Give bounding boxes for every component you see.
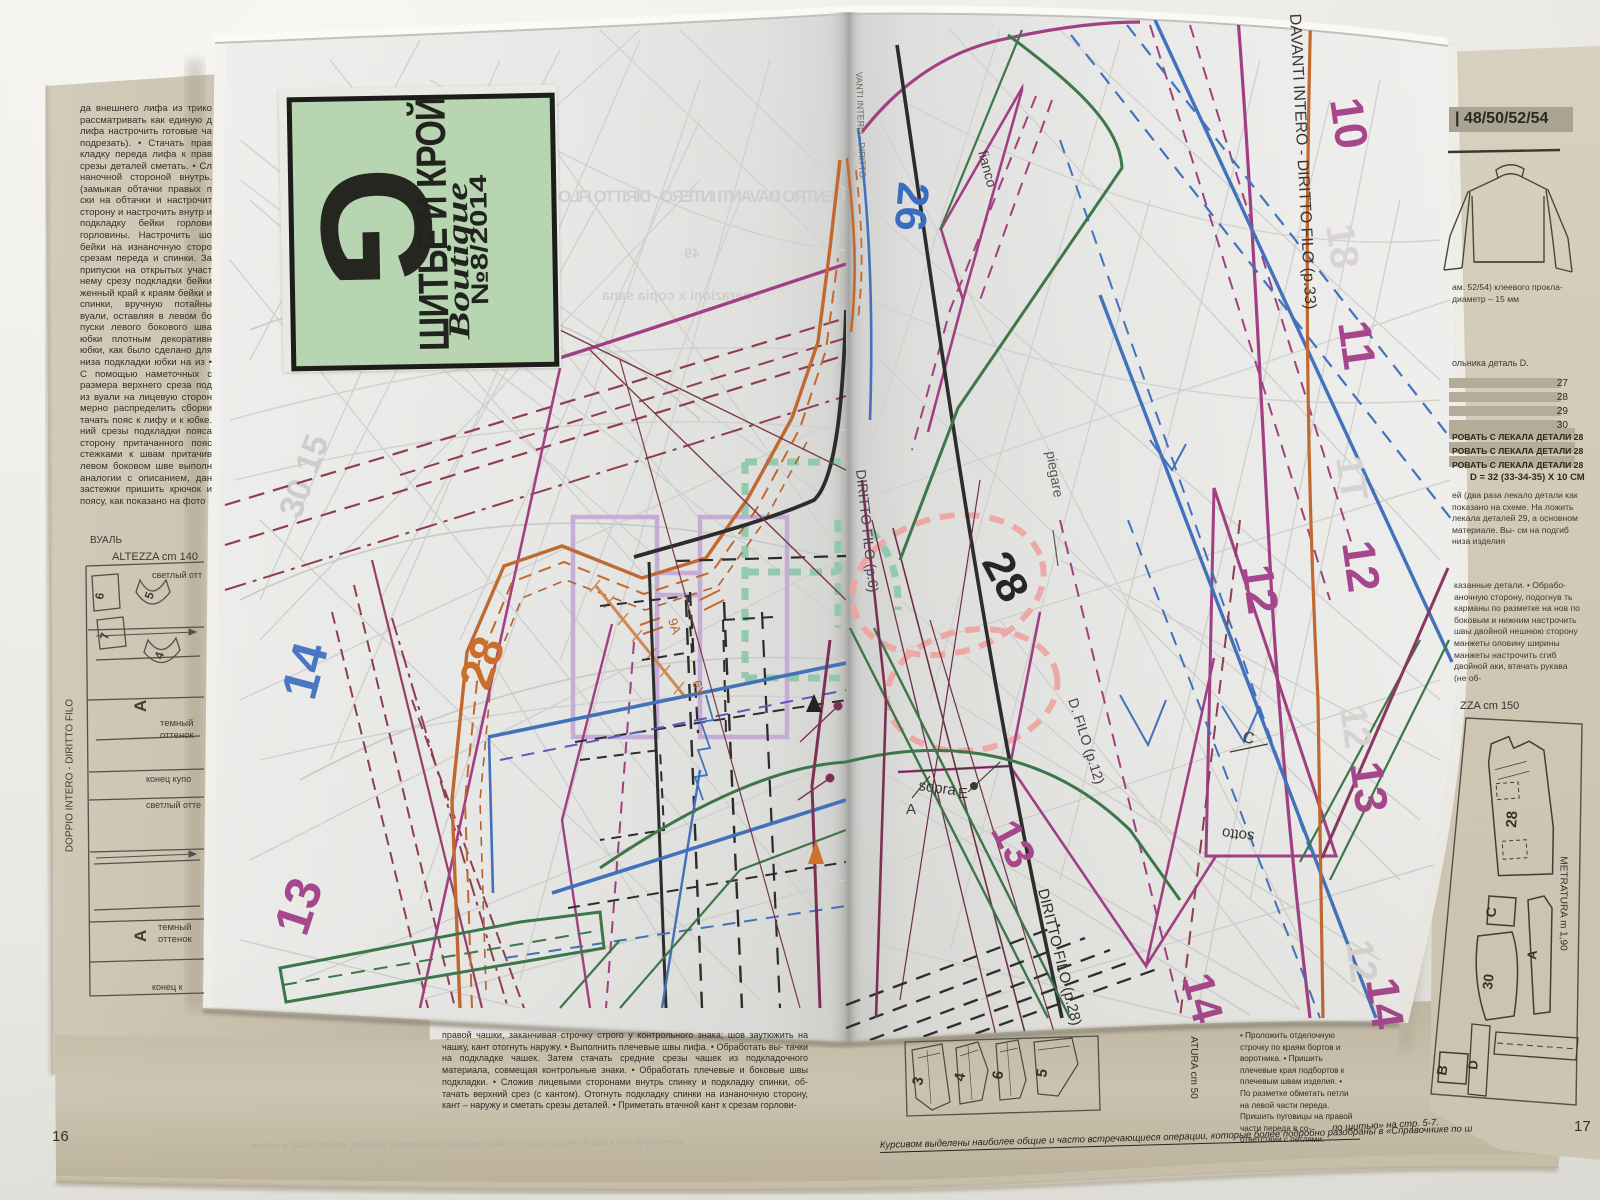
svg-text:D: D — [1465, 1059, 1481, 1070]
svg-text:1T: 1T — [1327, 453, 1375, 503]
svg-text:A: A — [906, 801, 916, 818]
svg-text:26: 26 — [885, 180, 938, 233]
svg-text:14: 14 — [1356, 974, 1415, 1032]
svg-text:12: 12 — [1332, 537, 1391, 595]
svg-text:49: 49 — [684, 245, 700, 261]
svg-text:30: 30 — [1479, 973, 1497, 990]
svg-text:11: 11 — [1328, 317, 1386, 372]
svg-text:12: 12 — [1232, 562, 1287, 617]
svg-text:A: A — [131, 930, 150, 942]
svg-text:10: 10 — [1320, 94, 1379, 152]
svg-text:CENTRO DAVANTI INTERO - DIRITT: CENTRO DAVANTI INTERO - DIRITTO FILO — [558, 187, 846, 206]
svg-text:12: 12 — [1337, 937, 1384, 985]
svg-text:18: 18 — [1317, 221, 1367, 271]
svg-text:12: 12 — [1331, 703, 1378, 751]
svg-text:E: E — [958, 785, 968, 802]
svg-text:13: 13 — [1340, 758, 1399, 816]
svg-text:28: 28 — [1503, 810, 1521, 828]
svg-text:A: A — [131, 700, 150, 712]
